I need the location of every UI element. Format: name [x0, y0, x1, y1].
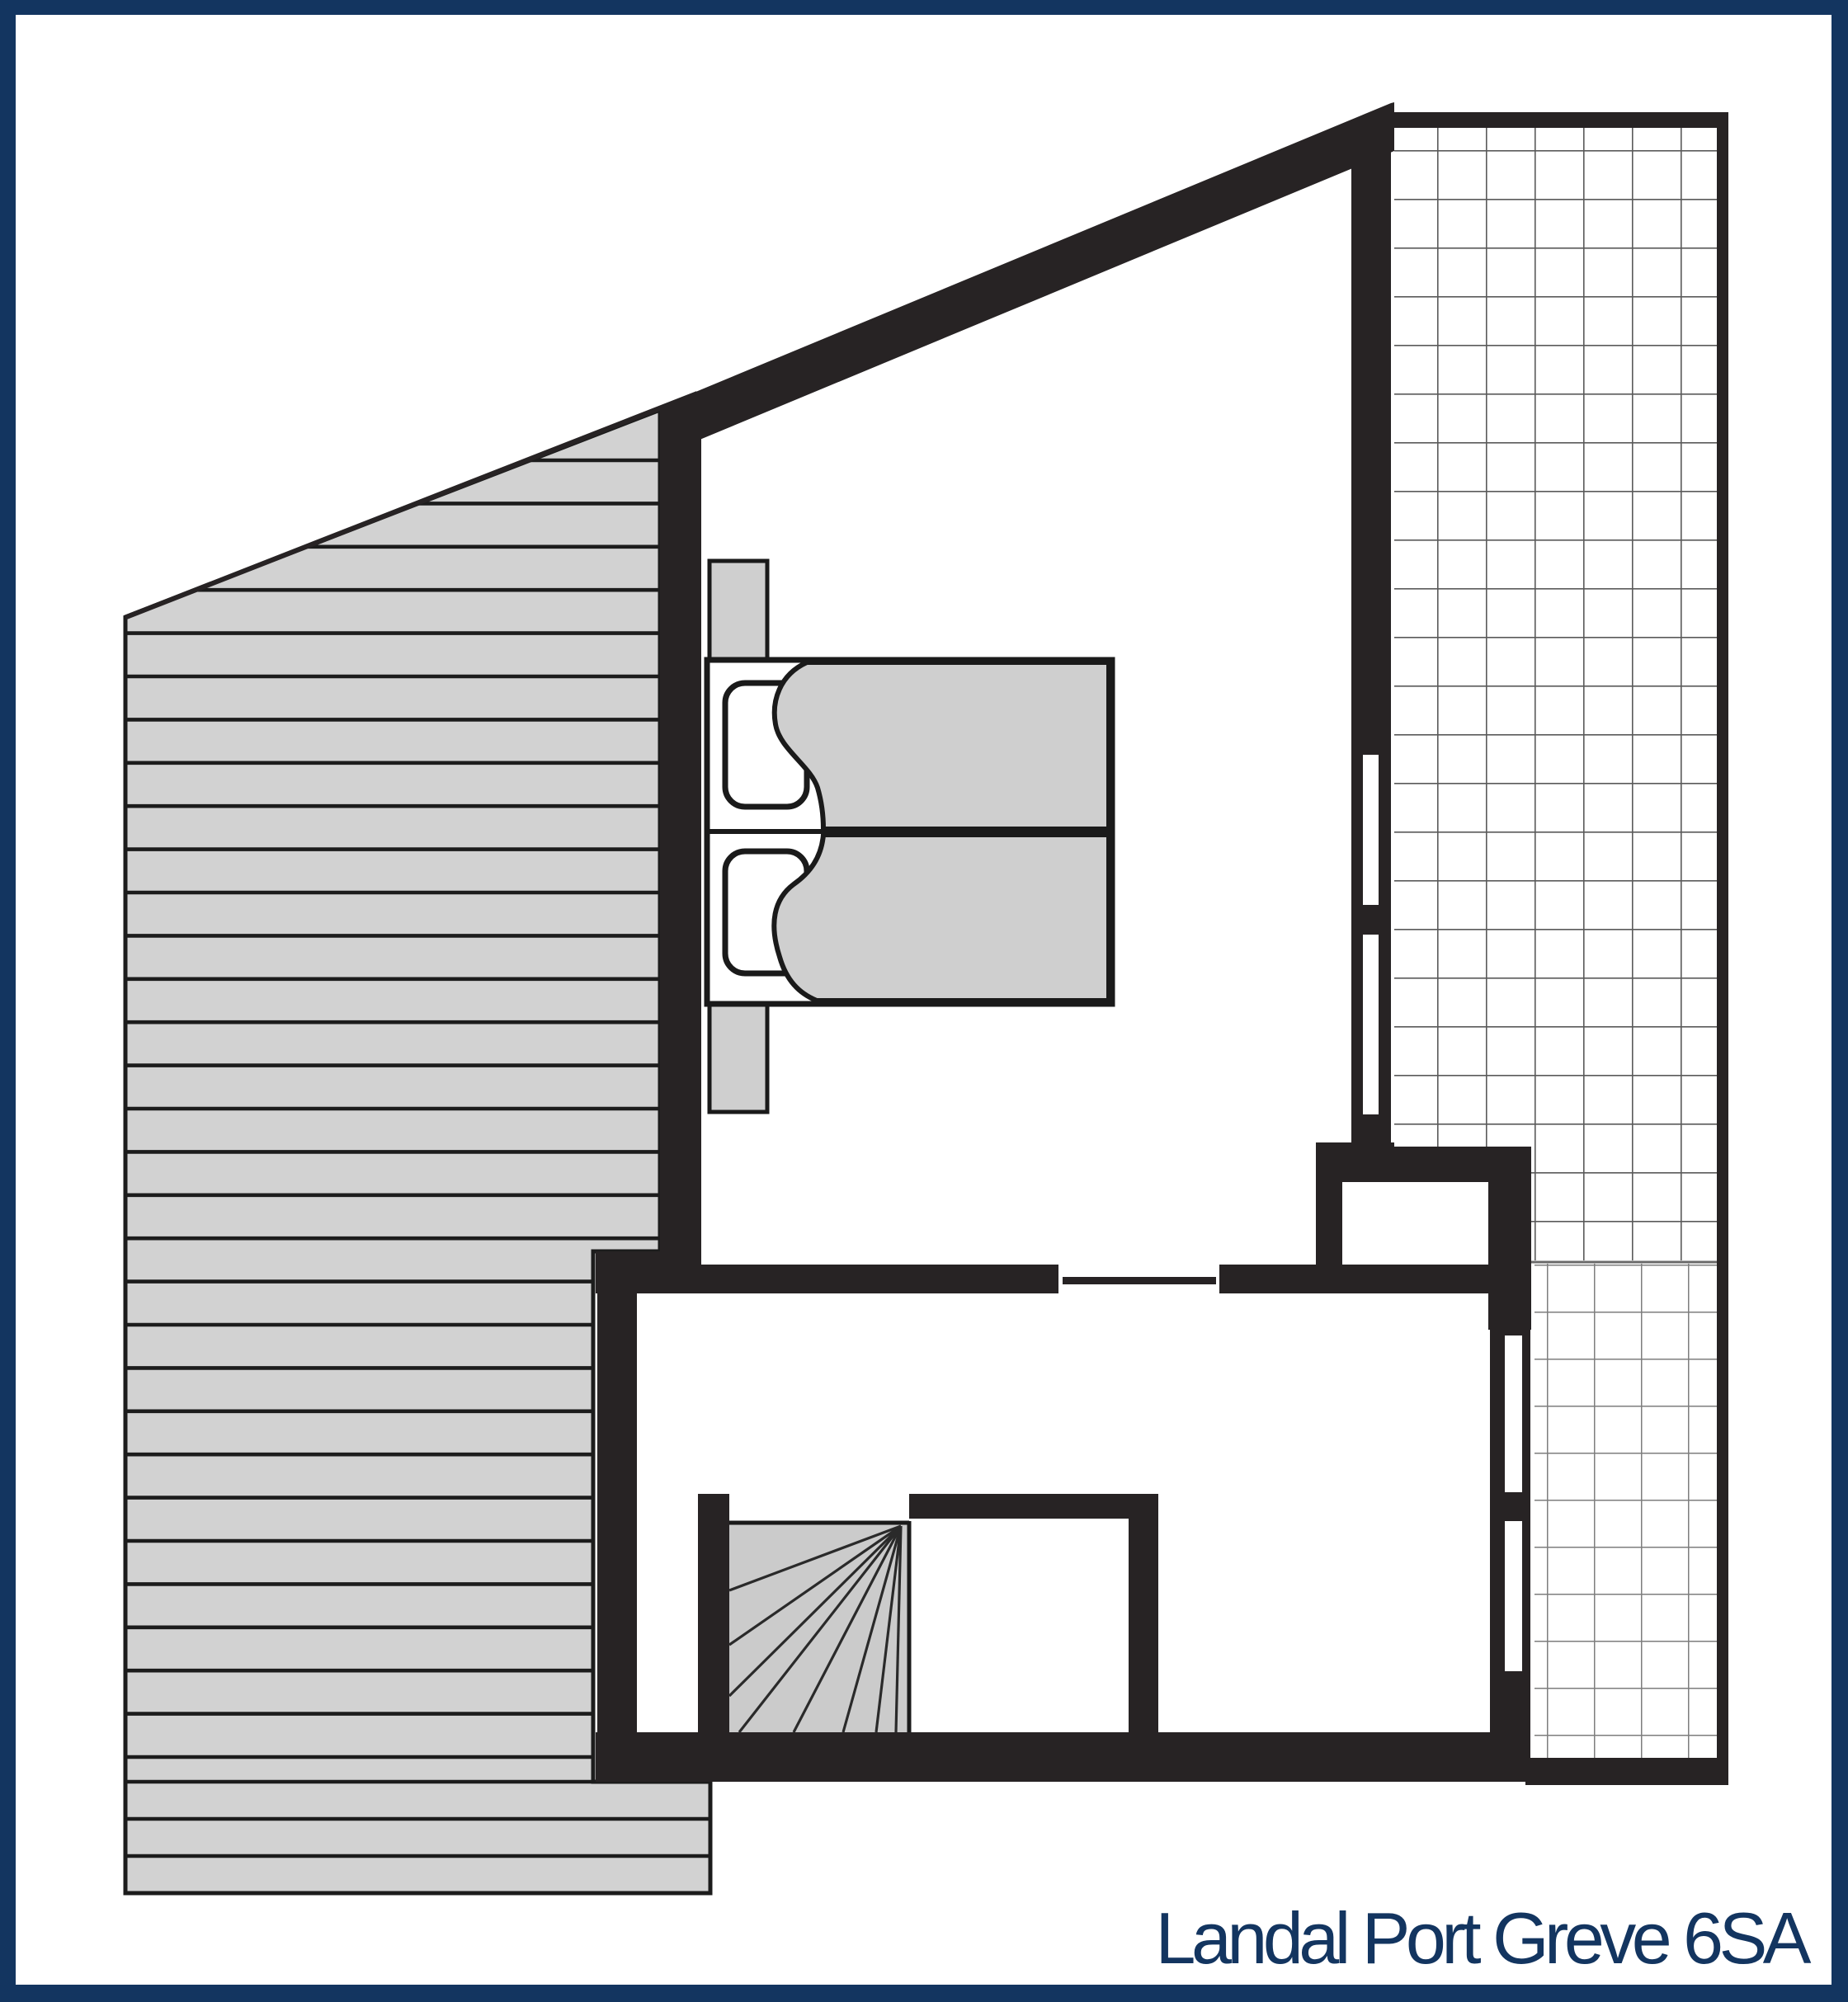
svg-text:Landal Port Greve 6SA: Landal Port Greve 6SA [1156, 1897, 1812, 1979]
